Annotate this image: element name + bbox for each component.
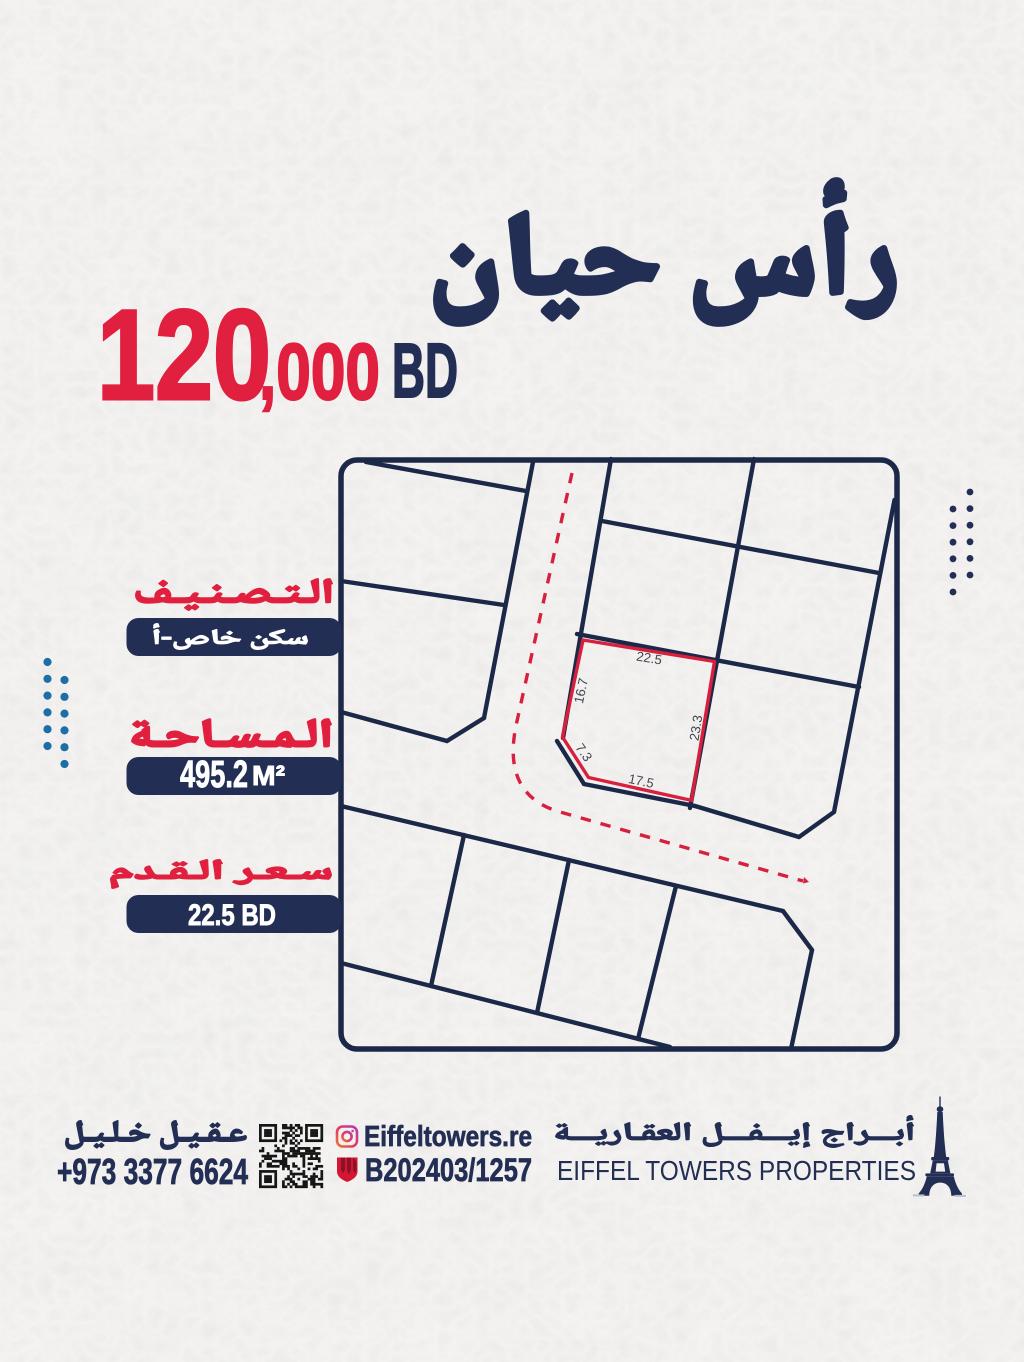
svg-text:120: 120 [97, 284, 271, 427]
svg-text:22.5 BD: 22.5 BD [188, 899, 276, 932]
svg-text:EIFFEL TOWERS PROPERTIES: EIFFEL TOWERS PROPERTIES [557, 1155, 916, 1186]
svg-text:BD: BD [392, 328, 458, 414]
svg-text:M²: M² [252, 760, 285, 791]
svg-text:,000: ,000 [259, 327, 380, 416]
svg-text:Eiffeltowers.re: Eiffeltowers.re [364, 1121, 532, 1153]
svg-text:B202403/1257: B202403/1257 [365, 1152, 532, 1188]
svg-text:495.2: 495.2 [180, 754, 248, 796]
svg-text:+973 3377 6624: +973 3377 6624 [57, 1151, 248, 1192]
